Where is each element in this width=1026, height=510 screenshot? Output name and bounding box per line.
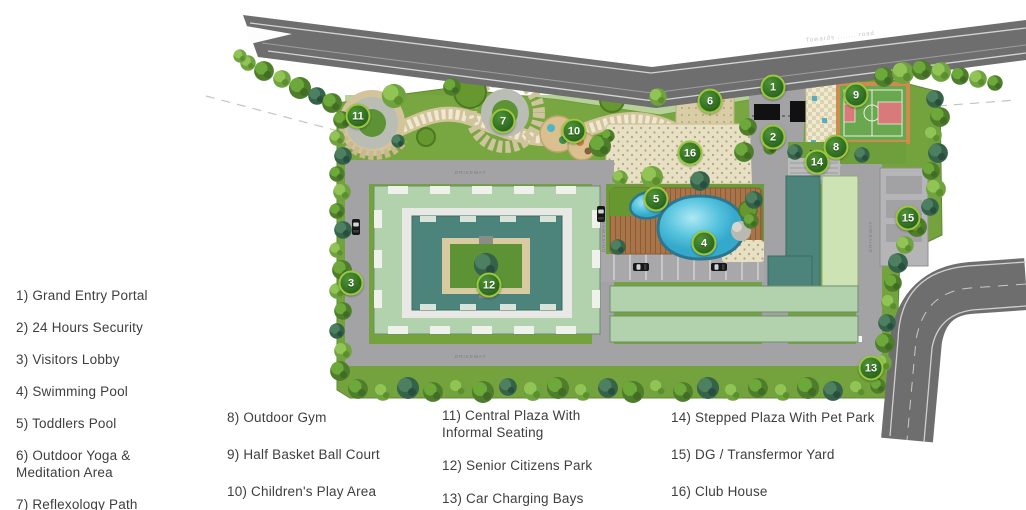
legend-item: 5) Toddlers Pool [16,415,174,432]
svg-text:DRIVEWAY: DRIVEWAY [601,220,606,252]
legend-item: 13) Car Charging Bays [442,490,612,507]
amenity-marker-4: 4 [692,231,717,256]
amenity-marker-7: 7 [491,109,516,134]
amenity-marker-16: 16 [678,141,703,166]
legend-item: 3) Visitors Lobby [16,351,174,368]
legend-column-3: 11) Central Plaza With Informal Seating1… [442,407,612,507]
legend-item: 4) Swimming Pool [16,383,174,400]
amenity-marker-9: 9 [844,83,869,108]
svg-text:DRIVEWAY: DRIVEWAY [455,354,487,359]
legend-column-1: 1) Grand Entry Portal2) 24 Hours Securit… [16,287,174,510]
amenity-marker-13: 13 [859,356,884,381]
legend-item: 6) Outdoor Yoga & Meditation Area [16,447,174,481]
legend-item: 7) Reflexology Path [16,496,174,510]
amenity-marker-6: 6 [698,89,723,114]
legend-item: 1) Grand Entry Portal [16,287,174,304]
amenity-marker-1: 1 [761,75,786,100]
amenity-marker-15: 15 [896,206,921,231]
amenity-marker-12: 12 [477,273,502,298]
legend-item: 12) Senior Citizens Park [442,457,612,474]
legend-column-4: 14) Stepped Plaza With Pet Park15) DG / … [671,409,951,500]
amenity-marker-3: 3 [339,271,364,296]
amenity-marker-10: 10 [562,119,587,144]
svg-text:DRIVEWAY: DRIVEWAY [455,170,487,175]
entry-portal-structure [754,104,780,120]
legend-item: 8) Outdoor Gym [227,409,422,426]
amenity-marker-2: 2 [761,125,786,150]
amenity-marker-11: 11 [346,104,371,129]
amenity-marker-14: 14 [805,150,830,175]
legend-item: 2) 24 Hours Security [16,319,174,336]
legend-item: 9) Half Basket Ball Court [227,446,422,463]
legend-item: 15) DG / Transfermor Yard [671,446,951,463]
legend-column-2: 8) Outdoor Gym9) Half Basket Ball Court1… [227,409,422,500]
site-plan-page: Towards ....... road DRIVEWAY DRIVEWAY D… [0,0,1026,510]
legend-item: 16) Club House [671,483,951,500]
svg-text:DRIVEWAY: DRIVEWAY [868,220,873,252]
amenity-marker-5: 5 [644,187,669,212]
legend-item: 11) Central Plaza With Informal Seating [442,407,612,441]
legend-item: 10) Children's Play Area [227,483,422,500]
pool-area [606,184,764,262]
legend-item: 14) Stepped Plaza With Pet Park [671,409,951,426]
